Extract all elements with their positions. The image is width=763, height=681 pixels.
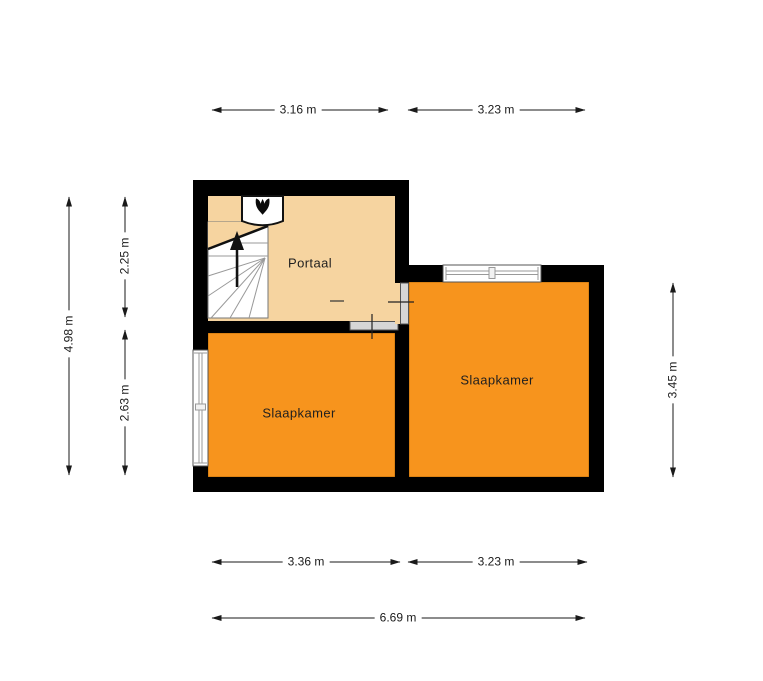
dim-label-right: 3.45 m (666, 357, 681, 404)
wall-right (589, 265, 604, 477)
dim-label-left-upper: 2.25 m (118, 233, 133, 280)
window-top (443, 265, 541, 282)
room-label-slaapkamer-left: Slaapkamer (262, 406, 335, 421)
dim-label-left-lower: 2.63 m (118, 380, 133, 427)
floorplan-canvas: Portaal Slaapkamer Slaapkamer 3.16 m 3.2… (0, 0, 763, 681)
window-divider (196, 404, 206, 410)
boiler-unit (242, 196, 283, 225)
wall-left-upper (193, 196, 208, 350)
room-label-slaapkamer-right: Slaapkamer (460, 373, 533, 388)
window-divider (489, 268, 495, 279)
dim-label-left-total: 4.98 m (62, 311, 77, 358)
dim-label-top-2: 3.23 m (473, 103, 520, 118)
window-left (193, 350, 208, 466)
wall-left-lower (193, 466, 208, 477)
floorplan-drawing (0, 0, 763, 681)
room-label-portaal: Portaal (288, 256, 332, 271)
wall-right-top-a (401, 265, 443, 282)
dim-label-bottom-1: 3.36 m (283, 555, 330, 570)
dim-label-top-1: 3.16 m (275, 103, 322, 118)
wall-bottom (193, 477, 604, 492)
staircase (208, 222, 268, 318)
wall-divider-lower (395, 324, 409, 477)
wall-top (193, 180, 409, 196)
dim-label-bottom-total: 6.69 m (375, 611, 422, 626)
dim-label-bottom-2: 3.23 m (473, 555, 520, 570)
